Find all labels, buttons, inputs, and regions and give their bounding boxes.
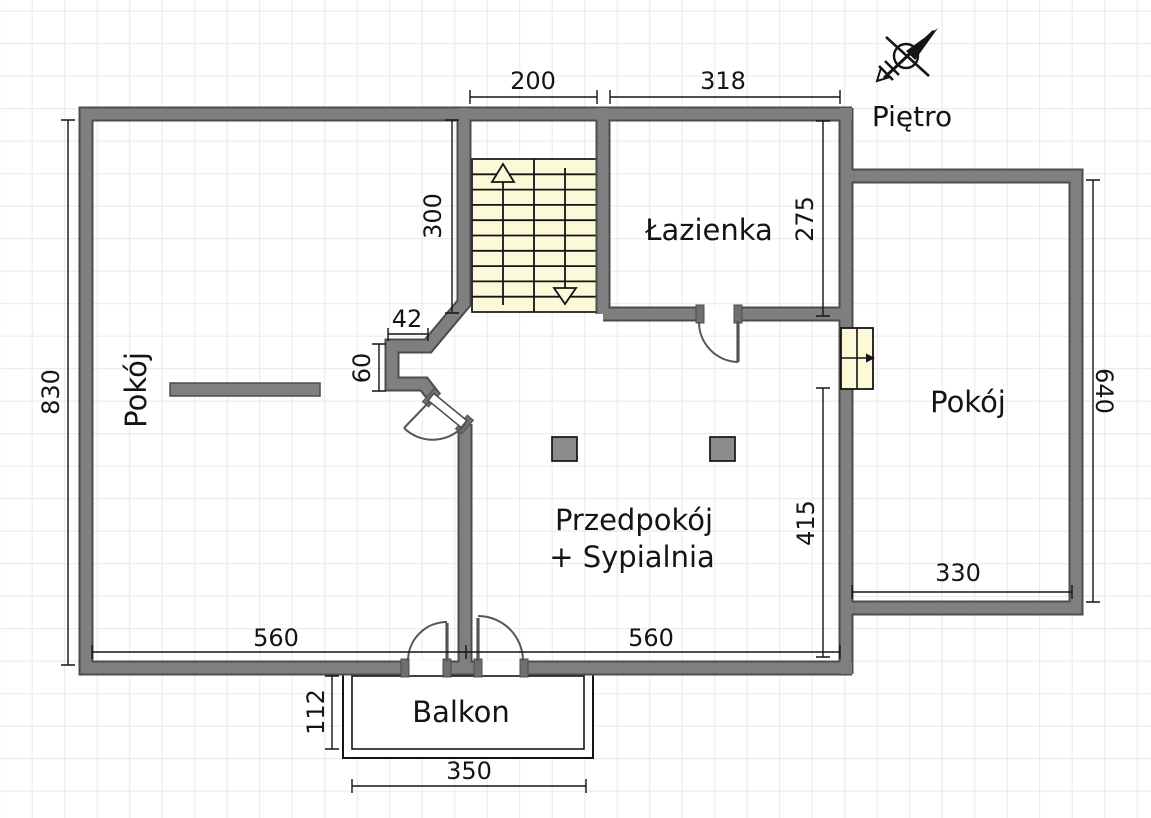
balcony-door-right [478,616,523,661]
balcony-door-left [408,622,447,661]
floor-title: Piętro [872,100,952,133]
dim-bottom-left-width: 560 [253,624,299,652]
hall-diagonal-door [404,394,467,440]
dim-nook-width: 42 [392,305,423,333]
dim-line-bottom-widths [92,645,840,659]
staircase [472,159,597,312]
doors [404,321,738,661]
dim-stairs-width: 200 [510,67,556,95]
dim-balcony-depth: 112 [302,689,330,735]
room-left-label: Pokój [119,352,153,428]
door-jambs [401,305,742,677]
opening-bathroom [700,307,738,321]
chimney-box [841,328,875,389]
dim-bottom-right-width: 560 [628,624,674,652]
dim-right-room-width: 330 [935,559,981,587]
north-arrow-icon [877,28,938,81]
opening-balcony-left [405,661,447,675]
dim-balcony-width: 350 [446,757,492,785]
dim-stairs-depth: 300 [419,193,447,239]
hall-label-line2: + Sypialnia [549,540,715,574]
dim-line-right-room-width [852,585,1072,599]
dim-bathroom-height: 275 [791,196,819,242]
dim-hall-height: 415 [792,500,820,546]
dim-nook-height: 60 [348,353,376,384]
room-left-partition-wall [170,383,320,396]
dim-left-height: 830 [37,369,65,415]
floor-plan-drawing: 200 318 830 300 275 42 60 415 640 330 56… [0,0,1151,818]
room-right-label: Pokój [930,385,1006,419]
door-openings [405,307,738,675]
bathroom-label: Łazienka [644,213,773,247]
floor-plan-canvas: 200 318 830 300 275 42 60 415 640 330 56… [0,0,1151,818]
column-left [552,437,577,461]
hall-diagonal-door-leaf [428,394,467,428]
opening-balcony-right [478,661,524,675]
hall-label-line1: Przedpokój [555,503,713,537]
dim-bathroom-width: 318 [700,67,746,95]
dim-right-room-height: 640 [1090,368,1118,414]
bathroom-door [699,321,738,362]
column-right [710,437,735,461]
balcony-label: Balkon [412,695,510,729]
